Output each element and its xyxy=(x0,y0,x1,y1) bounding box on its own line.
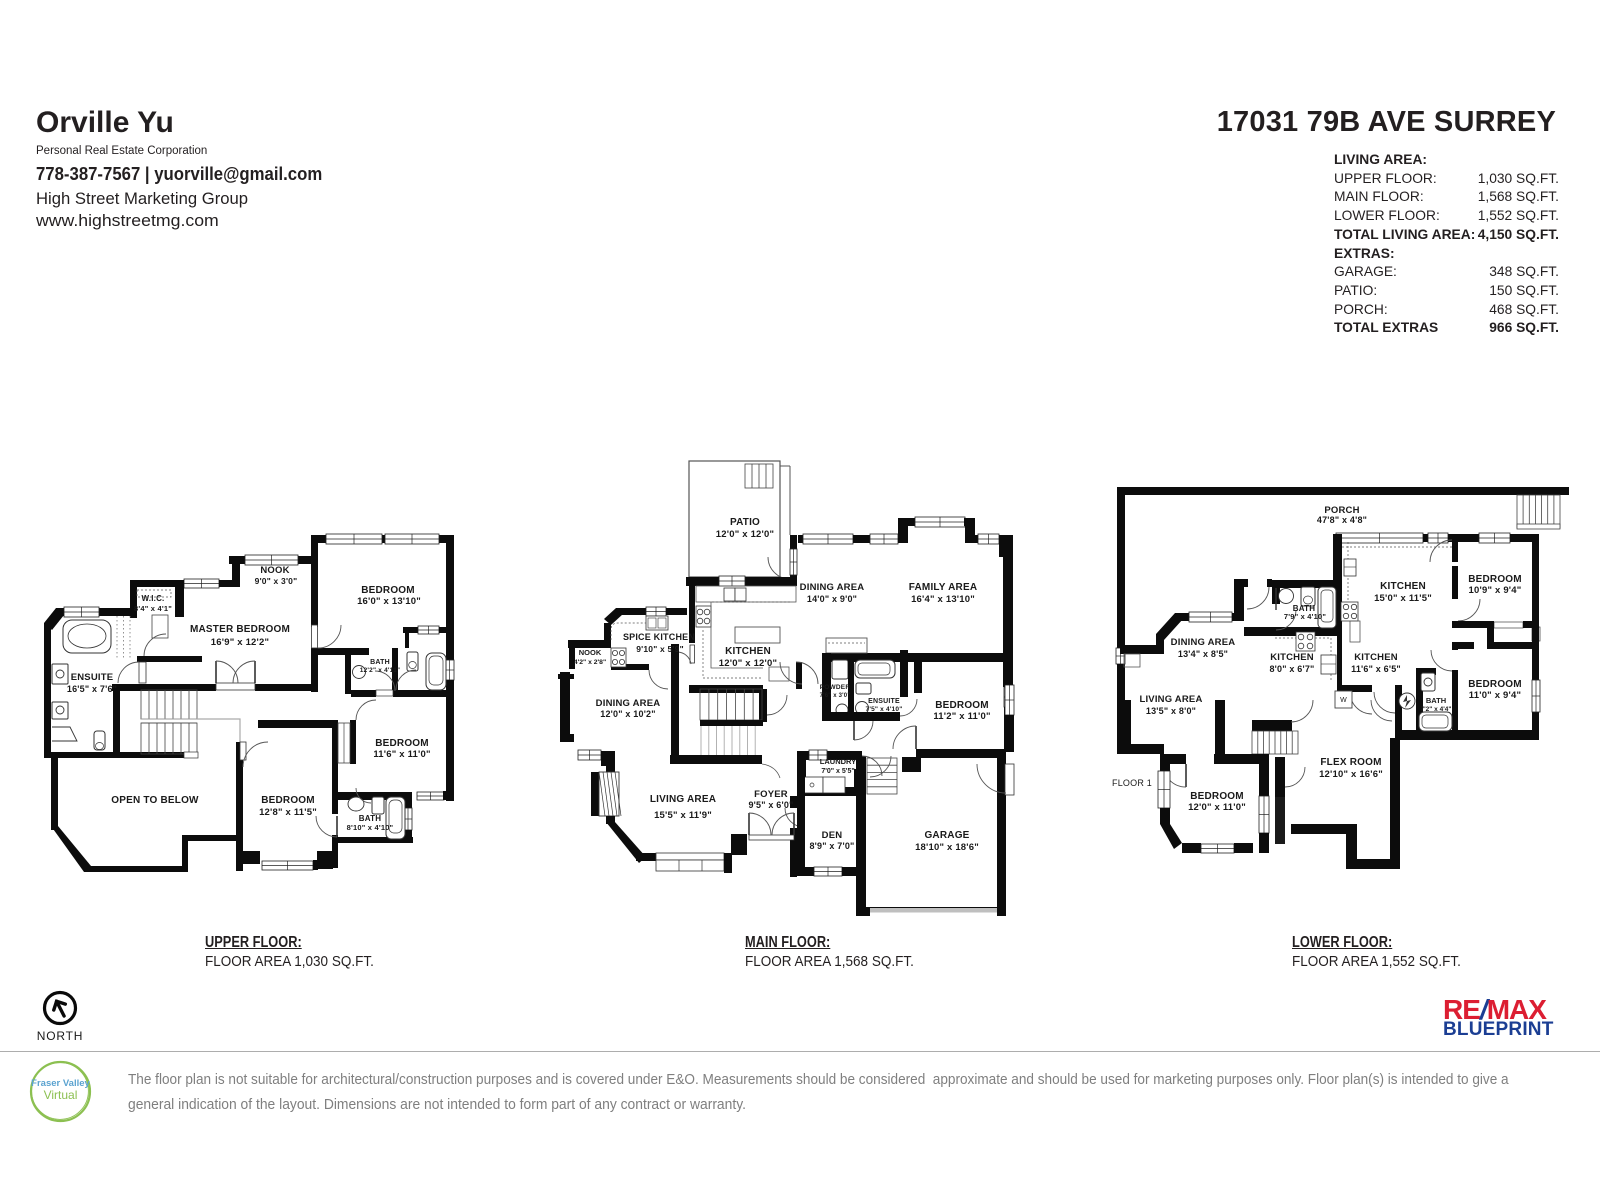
svg-text:BEDROOM: BEDROOM xyxy=(1468,574,1522,585)
svg-text:11'0" x 9'4": 11'0" x 9'4" xyxy=(1469,690,1521,701)
svg-text:BATH: BATH xyxy=(370,659,390,666)
svg-text:FLOOR 1: FLOOR 1 xyxy=(1112,778,1152,788)
svg-text:16'4" x 13'10": 16'4" x 13'10" xyxy=(911,594,975,605)
svg-text:16'9" x 12'2": 16'9" x 12'2" xyxy=(211,637,269,648)
svg-text:16'5" x 7'6": 16'5" x 7'6" xyxy=(67,684,117,694)
svg-text:47'8" x 4'8": 47'8" x 4'8" xyxy=(1317,515,1367,525)
svg-text:12'2" x 4'11": 12'2" x 4'11" xyxy=(360,667,400,674)
svg-text:12'8" x 11'5": 12'8" x 11'5" xyxy=(259,807,317,818)
svg-text:11'6" x 11'0": 11'6" x 11'0" xyxy=(373,749,430,760)
svg-text:10'9" x 9'4": 10'9" x 9'4" xyxy=(1469,585,1522,596)
svg-text:9'5" x 6'0": 9'5" x 6'0" xyxy=(748,800,793,810)
svg-text:9'10" x 5'9": 9'10" x 5'9" xyxy=(636,644,684,654)
svg-text:DINING AREA: DINING AREA xyxy=(596,698,661,709)
svg-text:BEDROOM: BEDROOM xyxy=(935,700,989,711)
svg-text:LAUNDRY: LAUNDRY xyxy=(820,757,856,766)
svg-text:BEDROOM: BEDROOM xyxy=(375,738,429,749)
svg-text:12'0" x 11'0": 12'0" x 11'0" xyxy=(1188,802,1246,813)
svg-text:14'0" x 9'0": 14'0" x 9'0" xyxy=(807,594,857,604)
svg-text:PATIO: PATIO xyxy=(730,517,760,528)
svg-text:ENSUITE: ENSUITE xyxy=(71,672,114,683)
svg-text:4'2" x 2'8": 4'2" x 2'8" xyxy=(574,659,606,666)
svg-text:7'2" x 4'4": 7'2" x 4'4" xyxy=(1421,706,1452,713)
svg-text:SPICE KITCHEN: SPICE KITCHEN xyxy=(623,632,695,642)
svg-text:W: W xyxy=(1340,697,1347,704)
svg-text:KITCHEN: KITCHEN xyxy=(725,646,771,657)
svg-text:18'10" x 18'6": 18'10" x 18'6" xyxy=(915,842,979,853)
svg-text:BEDROOM: BEDROOM xyxy=(261,795,315,806)
svg-text:7'5" x 4'10": 7'5" x 4'10" xyxy=(866,706,903,713)
svg-text:16'0" x 13'10": 16'0" x 13'10" xyxy=(357,596,421,607)
svg-text:BEDROOM: BEDROOM xyxy=(1468,679,1522,690)
svg-text:7'6" x 3'0": 7'6" x 3'0" xyxy=(820,693,851,699)
svg-text:FOYER: FOYER xyxy=(754,789,788,800)
svg-text:LIVING AREA: LIVING AREA xyxy=(1139,694,1202,705)
svg-text:BATH: BATH xyxy=(1426,696,1446,705)
svg-text:8'4" x 4'1": 8'4" x 4'1" xyxy=(134,604,172,613)
svg-text:NOOK: NOOK xyxy=(579,648,602,657)
svg-text:KITCHEN: KITCHEN xyxy=(1270,652,1314,663)
svg-text:FAMILY AREA: FAMILY AREA xyxy=(909,582,978,593)
svg-text:NORTH: NORTH xyxy=(37,1029,83,1043)
svg-text:13'5" x 8'0": 13'5" x 8'0" xyxy=(1146,706,1196,716)
svg-text:15'0" x 11'5": 15'0" x 11'5" xyxy=(1374,593,1432,604)
svg-text:NOOK: NOOK xyxy=(260,565,289,576)
svg-text:7'9" x 4'10": 7'9" x 4'10" xyxy=(1284,612,1327,621)
svg-text:Virtual: Virtual xyxy=(44,1088,78,1102)
svg-text:BEDROOM: BEDROOM xyxy=(1190,791,1244,802)
svg-text:8'9" x 7'0": 8'9" x 7'0" xyxy=(809,841,854,851)
svg-text:15'5" x 11'9": 15'5" x 11'9" xyxy=(654,810,712,821)
svg-text:8'0" x 6'7": 8'0" x 6'7" xyxy=(1269,664,1314,674)
svg-text:7'0" x 5'5": 7'0" x 5'5" xyxy=(821,768,854,775)
svg-text:W.I.C.: W.I.C. xyxy=(142,594,165,603)
svg-text:GARAGE: GARAGE xyxy=(924,830,969,841)
svg-text:KITCHEN: KITCHEN xyxy=(1380,581,1426,592)
svg-text:KITCHEN: KITCHEN xyxy=(1354,652,1398,663)
svg-text:FLEX ROOM: FLEX ROOM xyxy=(1320,757,1381,768)
svg-text:11'2" x 11'0": 11'2" x 11'0" xyxy=(933,711,990,722)
svg-text:13'4" x 8'5": 13'4" x 8'5" xyxy=(1178,649,1228,659)
svg-text:BATH: BATH xyxy=(359,814,381,823)
svg-text:11'6" x 6'5": 11'6" x 6'5" xyxy=(1351,664,1401,674)
svg-text:DINING AREA: DINING AREA xyxy=(800,582,865,593)
svg-text:ENSUITE: ENSUITE xyxy=(868,698,900,705)
svg-text:LIVING AREA: LIVING AREA xyxy=(650,794,716,805)
svg-text:12'0" x 12'0": 12'0" x 12'0" xyxy=(716,529,774,540)
svg-text:OPEN TO BELOW: OPEN TO BELOW xyxy=(111,795,199,806)
svg-text:12'0" x 10'2": 12'0" x 10'2" xyxy=(600,709,655,719)
svg-text:8'10" x 4'10": 8'10" x 4'10" xyxy=(347,823,394,832)
svg-text:9'0" x 3'0": 9'0" x 3'0" xyxy=(255,576,298,586)
svg-text:12'0" x 12'0": 12'0" x 12'0" xyxy=(719,658,777,669)
svg-text:DINING AREA: DINING AREA xyxy=(1171,637,1236,648)
svg-text:MASTER BEDROOM: MASTER BEDROOM xyxy=(190,624,290,635)
svg-text:12'10" x 16'6": 12'10" x 16'6" xyxy=(1319,769,1383,780)
svg-text:POWDER: POWDER xyxy=(820,684,851,691)
svg-text:BEDROOM: BEDROOM xyxy=(361,585,415,596)
svg-text:DEN: DEN xyxy=(822,830,843,841)
